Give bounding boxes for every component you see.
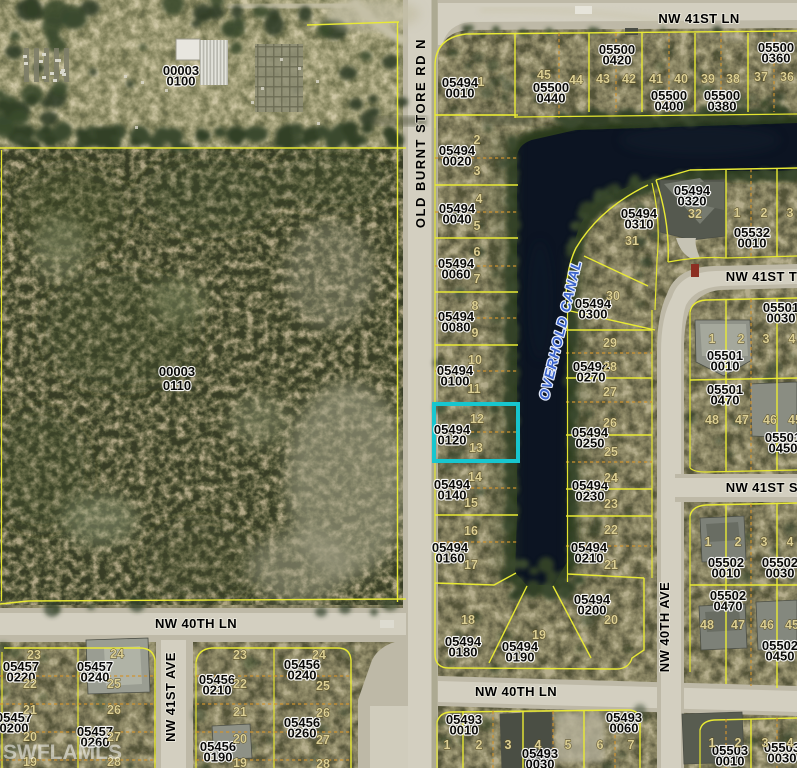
svg-text:25: 25 — [604, 445, 618, 459]
svg-text:21: 21 — [604, 558, 618, 572]
svg-text:20: 20 — [604, 613, 618, 627]
svg-text:46: 46 — [760, 618, 774, 632]
svg-text:20: 20 — [233, 732, 247, 746]
svg-text:5: 5 — [565, 738, 572, 752]
svg-text:47: 47 — [731, 618, 745, 632]
svg-text:26: 26 — [603, 416, 617, 430]
svg-text:22: 22 — [23, 677, 37, 691]
svg-text:3: 3 — [787, 206, 794, 220]
svg-text:1: 1 — [709, 332, 716, 346]
svg-text:0310: 0310 — [625, 217, 654, 232]
svg-text:0120: 0120 — [438, 433, 467, 448]
svg-text:47: 47 — [735, 413, 749, 427]
svg-text:0440: 0440 — [537, 91, 566, 106]
svg-text:8: 8 — [472, 299, 479, 313]
svg-text:26: 26 — [107, 703, 121, 717]
svg-text:0400: 0400 — [655, 99, 684, 114]
svg-text:9: 9 — [472, 326, 479, 340]
svg-text:3: 3 — [763, 332, 770, 346]
svg-text:0230: 0230 — [576, 489, 605, 504]
svg-text:27: 27 — [316, 733, 330, 747]
svg-text:0060: 0060 — [610, 721, 639, 736]
svg-text:2: 2 — [735, 535, 742, 549]
svg-text:25: 25 — [316, 679, 330, 693]
svg-text:41: 41 — [649, 72, 663, 86]
svg-text:0010: 0010 — [711, 359, 740, 374]
svg-text:NW 41ST LN: NW 41ST LN — [658, 11, 739, 26]
svg-text:2: 2 — [761, 206, 768, 220]
svg-text:1: 1 — [709, 736, 716, 750]
svg-text:0240: 0240 — [288, 668, 317, 683]
svg-text:0160: 0160 — [436, 551, 465, 566]
svg-text:45: 45 — [537, 68, 551, 82]
svg-text:4: 4 — [789, 332, 796, 346]
svg-text:11: 11 — [467, 382, 480, 396]
svg-text:23: 23 — [27, 648, 41, 662]
svg-text:0250: 0250 — [576, 436, 605, 451]
svg-text:0030: 0030 — [526, 757, 555, 768]
svg-text:7: 7 — [628, 738, 635, 752]
svg-text:0010: 0010 — [450, 723, 479, 738]
svg-text:38: 38 — [726, 72, 740, 86]
svg-text:28: 28 — [316, 757, 330, 768]
svg-text:0420: 0420 — [603, 53, 632, 68]
svg-text:0030: 0030 — [766, 566, 795, 581]
svg-text:0190: 0190 — [204, 750, 233, 765]
svg-text:0010: 0010 — [738, 236, 767, 251]
svg-text:0100: 0100 — [441, 374, 470, 389]
svg-text:17: 17 — [464, 558, 478, 572]
svg-text:0080: 0080 — [442, 320, 471, 335]
svg-text:0010: 0010 — [446, 86, 475, 101]
svg-text:43: 43 — [596, 72, 610, 86]
svg-text:0010: 0010 — [716, 754, 745, 768]
svg-text:0030: 0030 — [768, 751, 797, 766]
svg-text:0040: 0040 — [443, 212, 472, 227]
svg-text:37: 37 — [754, 70, 768, 84]
svg-text:NW 41ST ST: NW 41ST ST — [726, 480, 797, 495]
svg-text:0030: 0030 — [767, 311, 796, 326]
svg-text:NW 41ST AVE: NW 41ST AVE — [163, 652, 178, 742]
svg-text:12: 12 — [470, 412, 484, 426]
svg-text:1: 1 — [478, 75, 485, 89]
svg-text:45: 45 — [788, 413, 797, 427]
svg-text:36: 36 — [780, 70, 794, 84]
svg-text:6: 6 — [597, 738, 604, 752]
svg-text:NW 40TH LN: NW 40TH LN — [475, 684, 557, 699]
svg-text:24: 24 — [110, 647, 124, 661]
svg-text:0210: 0210 — [203, 683, 232, 698]
svg-text:NW 40TH AVE: NW 40TH AVE — [657, 582, 672, 672]
svg-text:5: 5 — [474, 219, 481, 233]
svg-text:4: 4 — [476, 192, 483, 206]
svg-text:28: 28 — [603, 360, 617, 374]
svg-text:0190: 0190 — [506, 650, 535, 665]
svg-text:13: 13 — [469, 441, 483, 455]
svg-text:26: 26 — [316, 706, 330, 720]
svg-text:00003: 00003 — [159, 364, 195, 379]
svg-text:SWFLAMLS: SWFLAMLS — [3, 741, 122, 764]
svg-text:0180: 0180 — [449, 645, 478, 660]
svg-text:0110: 0110 — [163, 378, 191, 393]
svg-text:45: 45 — [785, 618, 797, 632]
svg-text:22: 22 — [604, 523, 618, 537]
svg-text:0060: 0060 — [442, 267, 471, 282]
svg-text:31: 31 — [625, 234, 639, 248]
svg-text:0010: 0010 — [712, 566, 741, 581]
svg-text:24: 24 — [604, 471, 618, 485]
svg-text:0100: 0100 — [167, 74, 196, 89]
svg-text:27: 27 — [603, 385, 617, 399]
svg-text:0360: 0360 — [762, 51, 791, 66]
svg-text:0470: 0470 — [714, 599, 743, 614]
svg-text:46: 46 — [763, 413, 777, 427]
svg-text:0200: 0200 — [578, 603, 607, 618]
svg-text:16: 16 — [464, 524, 478, 538]
svg-text:3: 3 — [761, 535, 768, 549]
svg-text:2: 2 — [738, 332, 745, 346]
svg-text:24: 24 — [312, 648, 326, 662]
svg-text:0270: 0270 — [577, 370, 606, 385]
svg-text:14: 14 — [468, 470, 482, 484]
svg-text:15: 15 — [464, 496, 478, 510]
svg-text:21: 21 — [233, 705, 247, 719]
svg-text:29: 29 — [603, 336, 617, 350]
svg-text:44: 44 — [569, 73, 583, 87]
svg-text:1: 1 — [734, 206, 741, 220]
svg-text:NW 41ST TE: NW 41ST TE — [726, 269, 797, 284]
svg-text:0450: 0450 — [766, 649, 795, 664]
svg-text:10: 10 — [468, 353, 482, 367]
svg-text:1: 1 — [444, 738, 451, 752]
svg-text:2: 2 — [474, 133, 481, 147]
svg-text:19: 19 — [233, 756, 247, 768]
svg-text:0140: 0140 — [438, 488, 467, 503]
svg-text:23: 23 — [233, 648, 247, 662]
svg-text:0300: 0300 — [579, 307, 608, 322]
svg-text:0020: 0020 — [443, 154, 472, 169]
svg-text:0260: 0260 — [288, 726, 317, 741]
svg-text:4: 4 — [535, 738, 542, 752]
svg-text:40: 40 — [674, 72, 688, 86]
svg-text:6: 6 — [474, 245, 481, 259]
svg-text:21: 21 — [23, 703, 37, 717]
svg-text:0240: 0240 — [81, 670, 110, 685]
svg-text:42: 42 — [622, 72, 636, 86]
svg-text:48: 48 — [700, 618, 714, 632]
svg-text:22: 22 — [233, 677, 247, 691]
svg-text:30: 30 — [606, 289, 620, 303]
svg-text:0470: 0470 — [711, 393, 740, 408]
svg-text:OLD BURNT STORE RD N: OLD BURNT STORE RD N — [413, 38, 428, 228]
svg-text:2: 2 — [735, 736, 742, 750]
svg-text:NW 40TH LN: NW 40TH LN — [155, 616, 237, 631]
svg-text:2: 2 — [476, 738, 483, 752]
svg-text:3: 3 — [474, 164, 481, 178]
svg-text:19: 19 — [532, 628, 546, 642]
svg-text:3: 3 — [505, 738, 512, 752]
svg-text:1: 1 — [705, 535, 712, 549]
svg-text:0450: 0450 — [769, 441, 797, 456]
svg-text:48: 48 — [705, 413, 719, 427]
svg-text:0380: 0380 — [708, 99, 737, 114]
svg-text:32: 32 — [688, 207, 702, 221]
svg-text:0210: 0210 — [575, 551, 604, 566]
svg-text:3: 3 — [762, 736, 769, 750]
svg-text:23: 23 — [604, 497, 618, 511]
svg-text:18: 18 — [461, 613, 475, 627]
svg-text:39: 39 — [701, 72, 715, 86]
svg-text:4: 4 — [787, 535, 794, 549]
svg-text:4: 4 — [787, 736, 794, 750]
svg-text:25: 25 — [107, 677, 121, 691]
svg-text:7: 7 — [474, 272, 481, 286]
